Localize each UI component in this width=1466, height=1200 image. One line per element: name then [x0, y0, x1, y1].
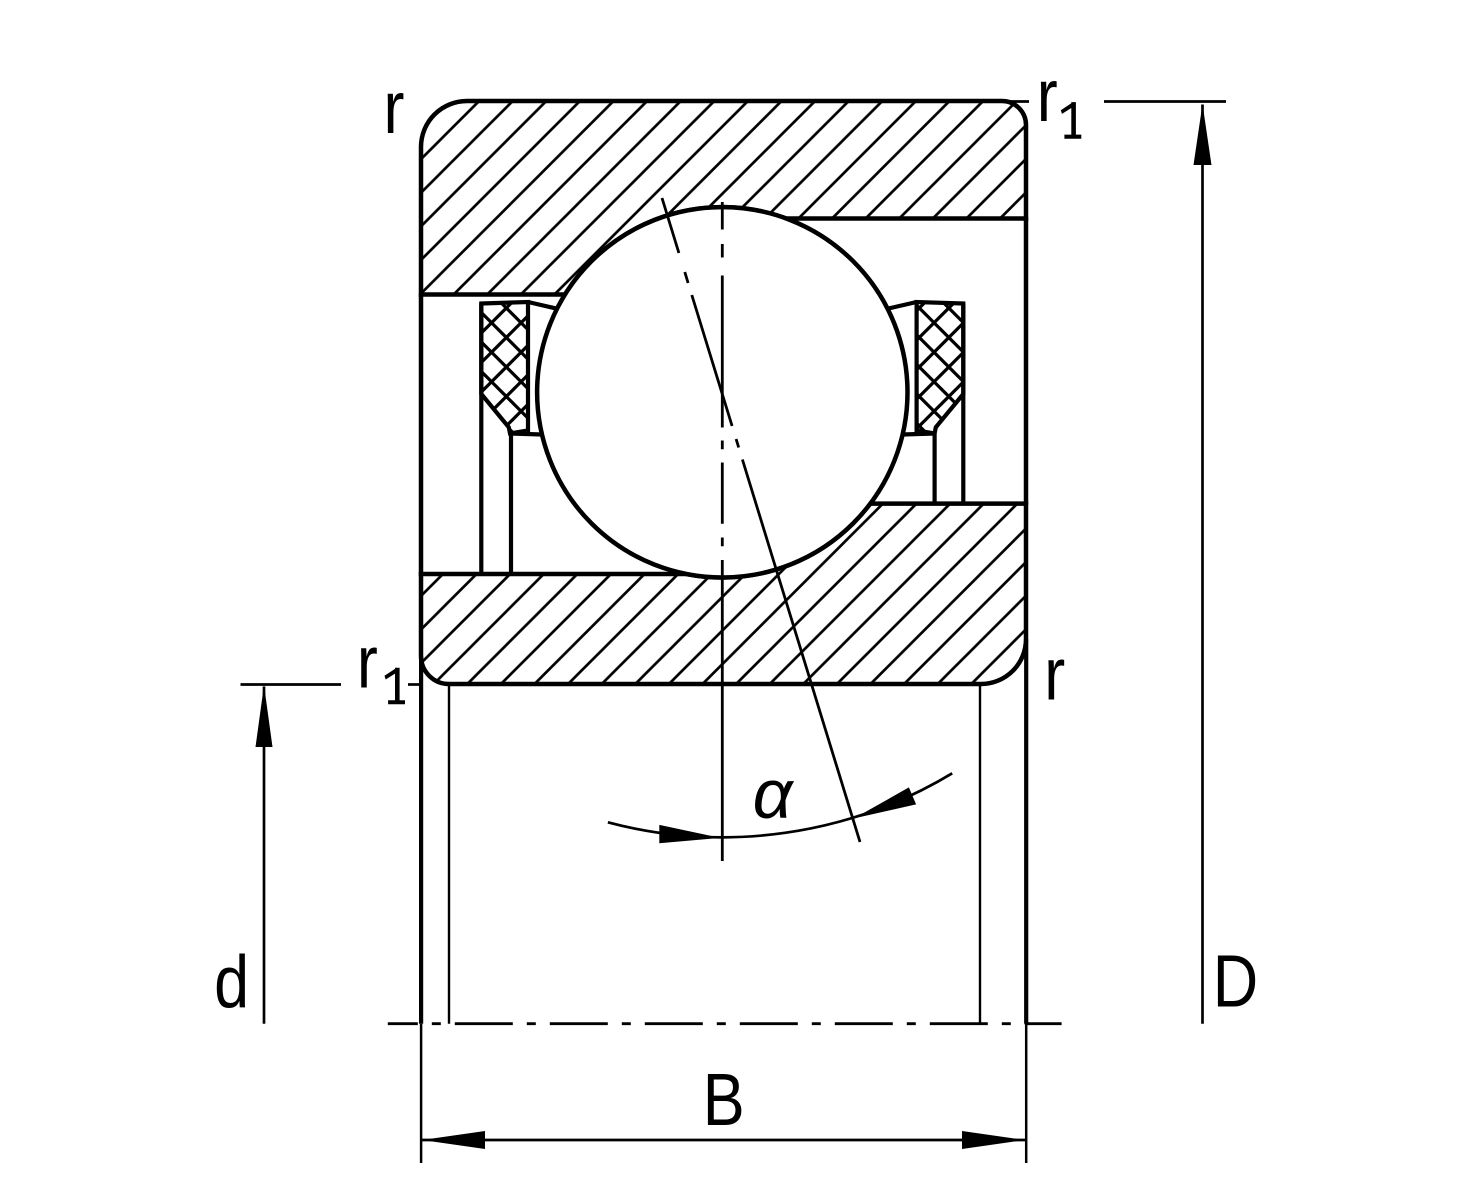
svg-text:r: r	[357, 621, 378, 704]
svg-text:B: B	[703, 1058, 745, 1141]
svg-text:α: α	[753, 755, 795, 833]
svg-text:d: d	[214, 941, 249, 1024]
svg-text:r: r	[384, 66, 405, 149]
svg-text:r: r	[1037, 54, 1058, 137]
svg-text:D: D	[1213, 940, 1258, 1023]
svg-text:r: r	[1044, 633, 1065, 716]
